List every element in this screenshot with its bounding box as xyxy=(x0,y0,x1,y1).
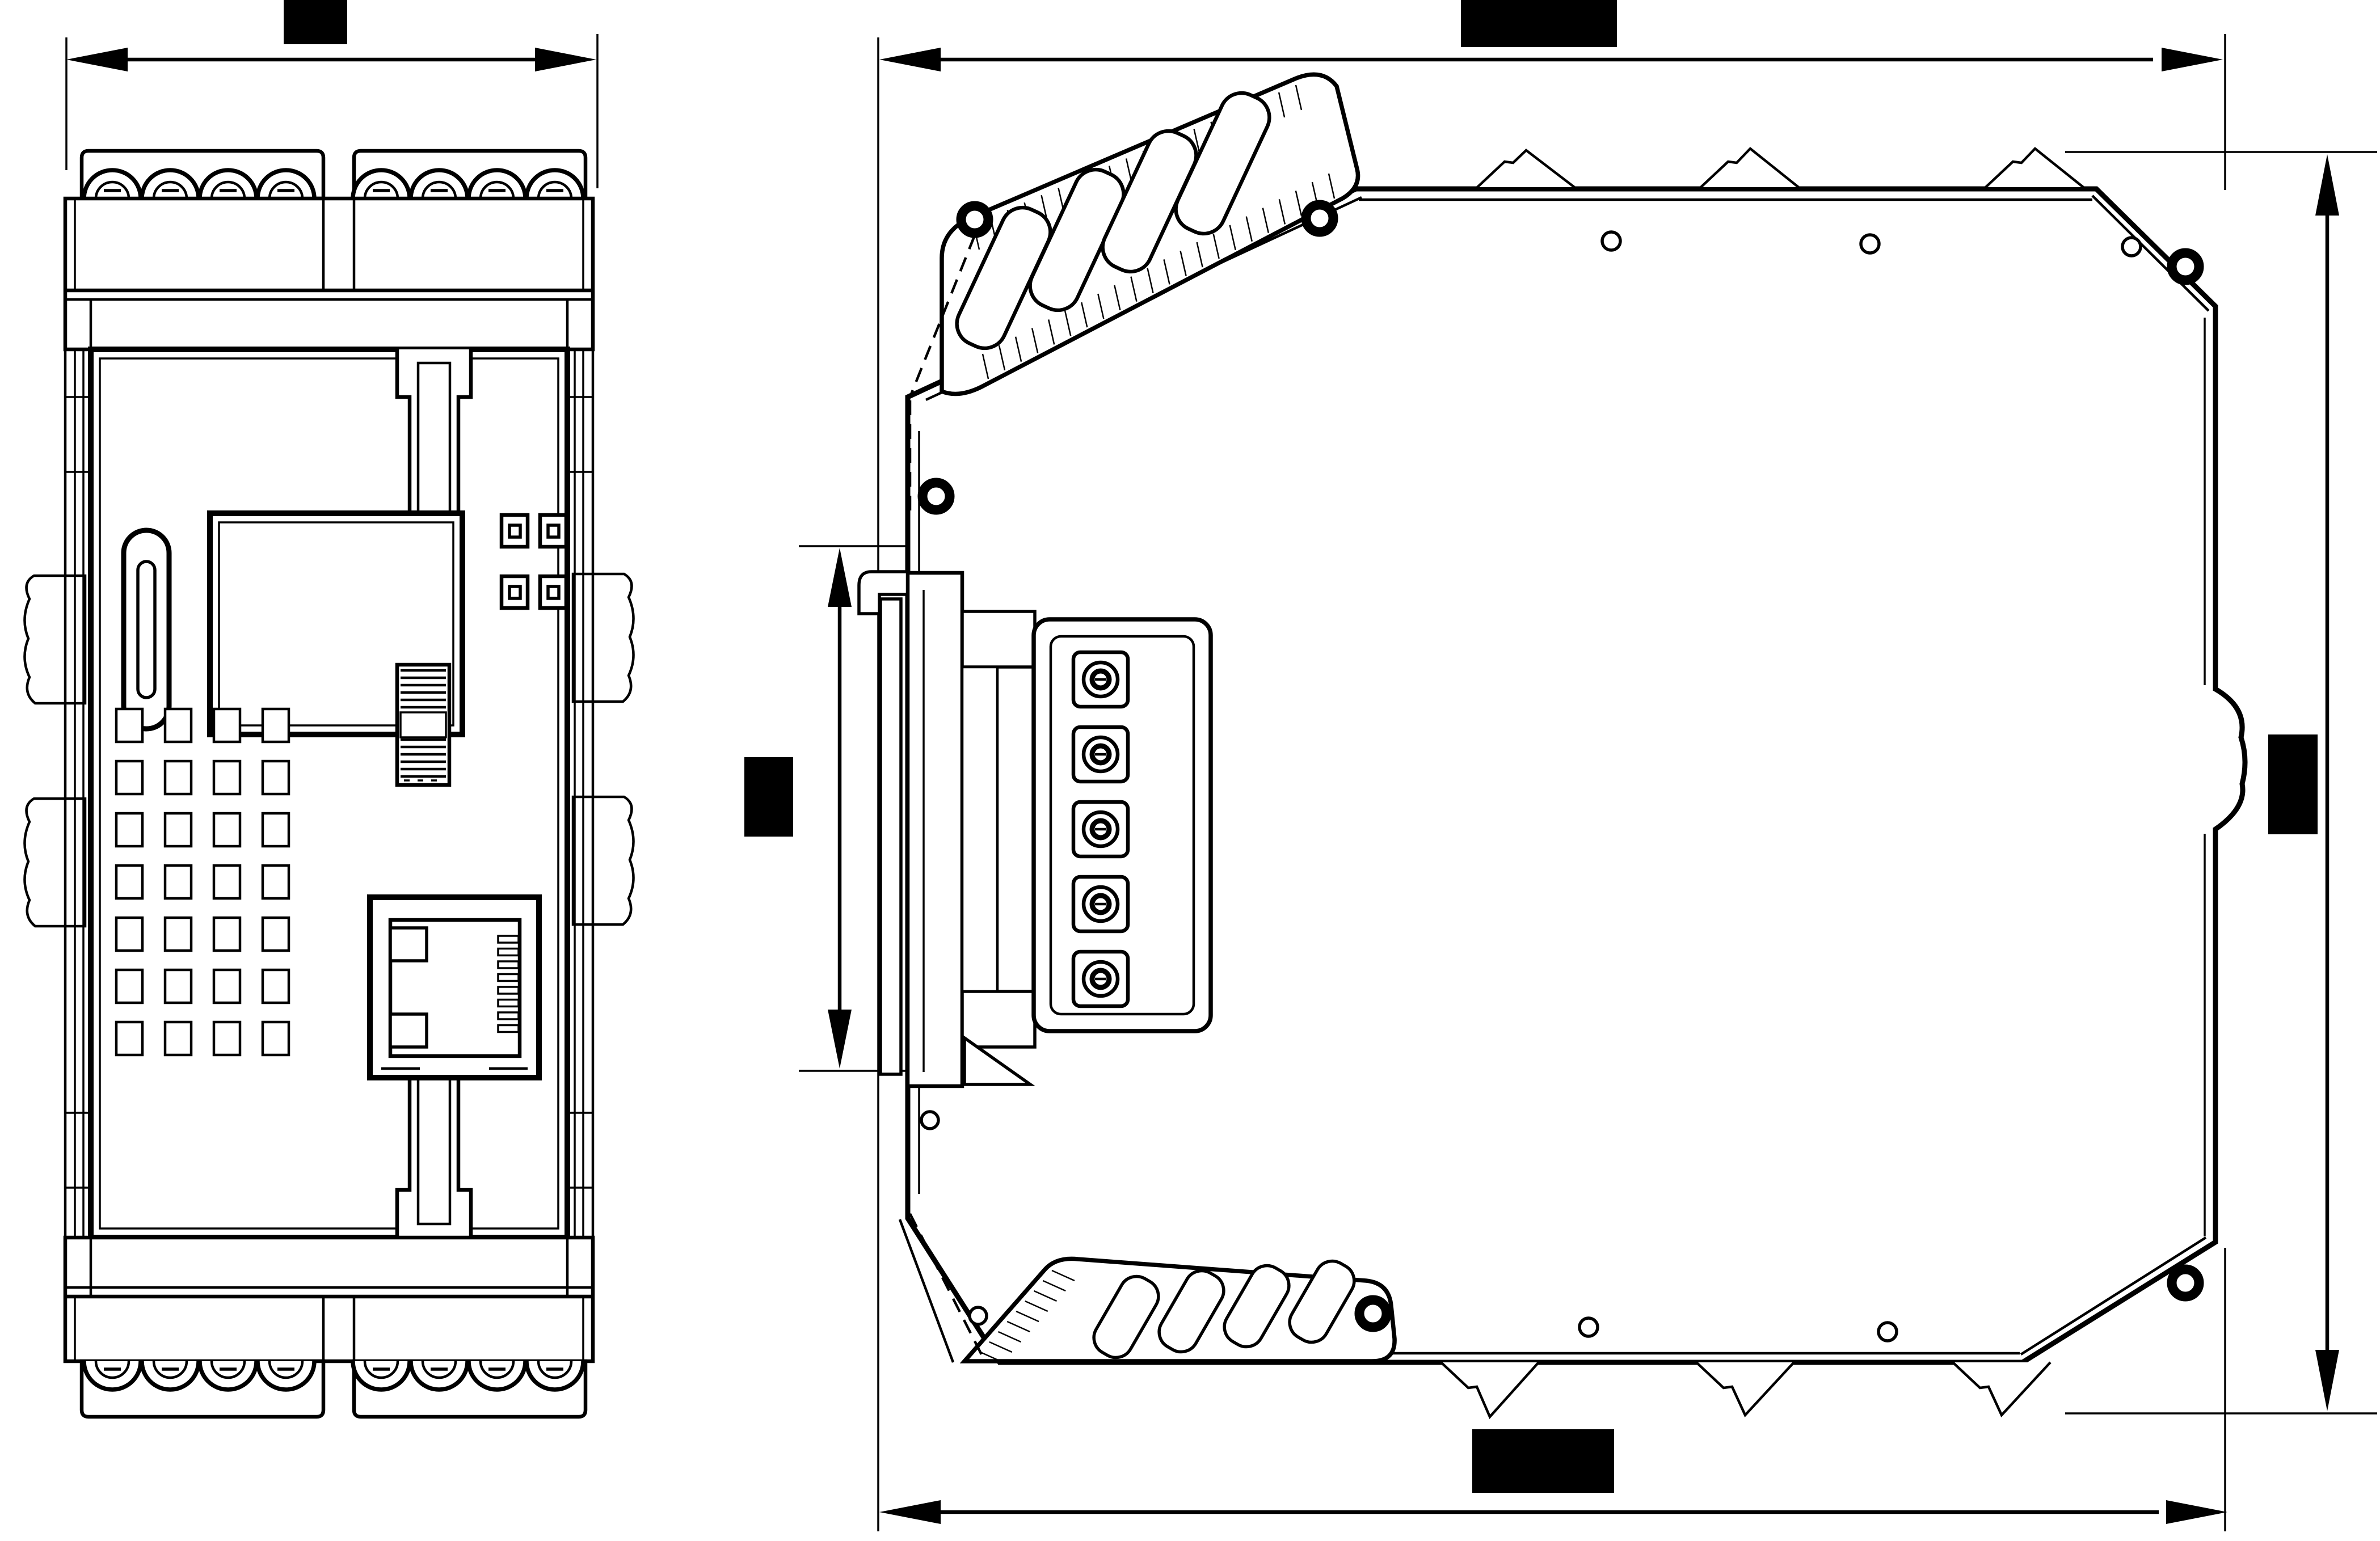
ethernet-pin xyxy=(498,974,519,981)
screw-head-icon xyxy=(1306,205,1333,232)
vent-slot xyxy=(214,918,240,951)
redacted-dimension-label-side-width-bottom xyxy=(1472,1429,1614,1493)
clip-flange-bottom xyxy=(962,991,1035,1047)
vent-slot xyxy=(165,709,191,742)
vent-slot xyxy=(116,918,142,951)
led-indicator-icon xyxy=(502,515,528,547)
vent-slot xyxy=(263,1022,289,1055)
vent-slot xyxy=(165,918,191,951)
bottom-latch-tab xyxy=(397,1057,471,1238)
vent-slot xyxy=(214,709,240,742)
ethernet-port xyxy=(370,897,539,1078)
led-indicator-icon xyxy=(502,576,528,608)
ethernet-latch-notch-bottom xyxy=(390,1014,427,1047)
vent-slot xyxy=(165,970,191,1003)
screw-head-icon xyxy=(2172,253,2199,280)
ethernet-pin xyxy=(498,961,519,968)
led-indicator-icon xyxy=(540,576,566,608)
screw-head-icon xyxy=(961,206,988,233)
front-view xyxy=(24,34,633,1417)
screw-hole-icon xyxy=(1579,1318,1598,1336)
screw-head-icon xyxy=(1359,1300,1387,1327)
vent-slot xyxy=(214,761,240,794)
ethernet-pin xyxy=(498,936,519,943)
screw-hole-icon xyxy=(1878,1323,1897,1341)
ethernet-pin xyxy=(498,1012,519,1019)
vent-slot xyxy=(263,970,289,1003)
vent-slot xyxy=(165,761,191,794)
front-face-panel xyxy=(91,349,567,1238)
led-indicator-icon xyxy=(540,515,566,547)
front-face xyxy=(91,349,567,1238)
ethernet-pin xyxy=(498,1000,519,1007)
vent-slot xyxy=(165,866,191,898)
screw-hole-icon xyxy=(921,1112,938,1129)
top-latch-tab xyxy=(397,349,471,530)
clip-flange-bar xyxy=(962,667,997,991)
vent-slot xyxy=(116,1022,142,1055)
terminal-housing-top xyxy=(65,199,593,349)
vent-slot xyxy=(214,970,240,1003)
screw-hole-icon xyxy=(970,1307,987,1324)
redacted-dimension-label-clip-height xyxy=(744,757,793,837)
vent-slot xyxy=(116,761,142,794)
terminal-housing-bottom xyxy=(65,1238,593,1361)
screw-hole-icon xyxy=(2122,238,2141,256)
ethernet-pin xyxy=(498,949,519,956)
redacted-dimension-label-side-width-top xyxy=(1461,0,1617,47)
vent-slot xyxy=(263,813,289,846)
drawing-canvas: Technical dimensional drawing — DIN-rail… xyxy=(0,0,2380,1541)
vent-slot xyxy=(116,813,142,846)
screw-hole-icon xyxy=(1602,232,1620,250)
screw-hole-icon xyxy=(1861,235,1879,253)
vent-slot xyxy=(263,709,289,742)
vent-slot xyxy=(214,1022,240,1055)
screw-head-icon xyxy=(922,483,950,510)
rear-terminal-connector xyxy=(1034,619,1211,1031)
vent-slot xyxy=(214,866,240,898)
vent-slot xyxy=(263,918,289,951)
clip-clamp-plate xyxy=(908,573,962,1086)
rotary-switch-body xyxy=(397,665,449,785)
vent-slot xyxy=(263,866,289,898)
vent-slot xyxy=(116,866,142,898)
ethernet-latch-notch-top xyxy=(390,928,427,961)
clip-slider xyxy=(881,599,901,1074)
vent-slot xyxy=(116,970,142,1003)
vent-slot xyxy=(214,813,240,846)
rotary-switch xyxy=(397,665,449,785)
connector-screws xyxy=(1073,652,1128,1006)
ethernet-pin xyxy=(498,987,519,994)
vent-slot xyxy=(165,813,191,846)
usb-c-port xyxy=(124,530,169,729)
redacted-dimension-label-front-width xyxy=(284,0,347,44)
redacted-dimension-label-side-height xyxy=(2268,734,2318,834)
ethernet-pin xyxy=(498,1025,519,1032)
vent-slot xyxy=(165,1022,191,1055)
vent-slot xyxy=(263,761,289,794)
vent-slot xyxy=(116,709,142,742)
clip-flange-top xyxy=(962,611,1035,667)
screw-head-icon xyxy=(2172,1269,2199,1297)
